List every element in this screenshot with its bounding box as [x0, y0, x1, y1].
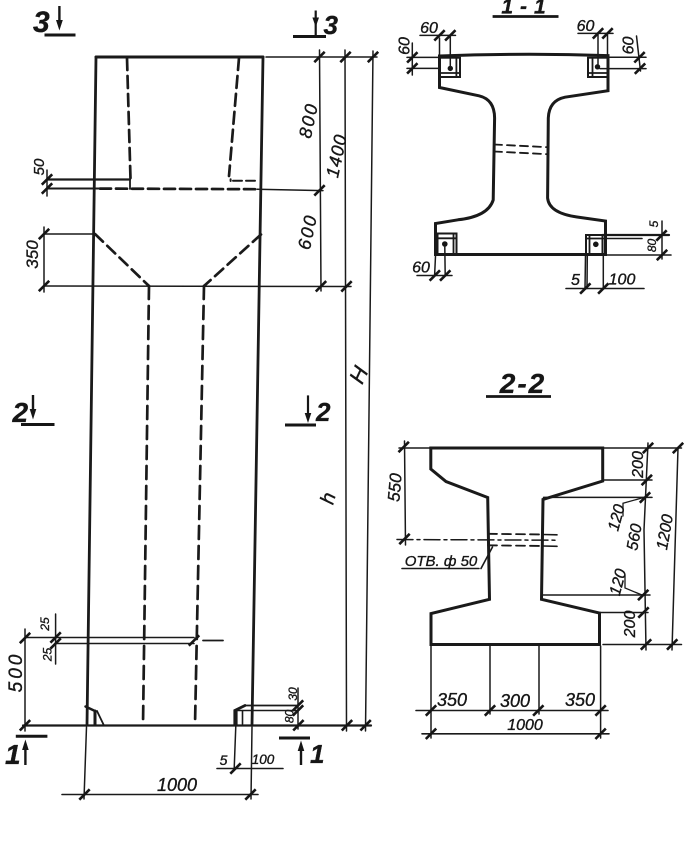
svg-text:60: 60: [621, 37, 638, 55]
svg-text:350: 350: [565, 690, 595, 710]
svg-text:80: 80: [283, 710, 297, 724]
svg-text:h: h: [317, 490, 341, 506]
svg-text:350: 350: [437, 690, 467, 710]
svg-text:30: 30: [286, 687, 300, 701]
svg-text:2-2: 2-2: [499, 368, 546, 399]
svg-text:5: 5: [571, 272, 580, 289]
svg-text:1: 1: [5, 739, 21, 770]
svg-text:200: 200: [630, 451, 647, 479]
svg-text:550: 550: [384, 472, 405, 502]
svg-text:60: 60: [577, 18, 595, 35]
svg-text:350: 350: [23, 240, 42, 269]
svg-text:200: 200: [622, 611, 639, 639]
svg-text:120: 120: [607, 567, 630, 597]
svg-text:25: 25: [41, 648, 55, 663]
svg-text:1000: 1000: [157, 775, 197, 795]
svg-text:600: 600: [294, 212, 321, 251]
svg-text:60: 60: [420, 20, 438, 37]
svg-text:25: 25: [38, 617, 52, 632]
svg-text:800: 800: [295, 101, 322, 140]
svg-text:ОТВ. ф 50: ОТВ. ф 50: [405, 553, 478, 570]
svg-text:5: 5: [220, 752, 228, 768]
svg-text:300: 300: [500, 691, 530, 711]
svg-text:80: 80: [645, 239, 659, 253]
svg-text:1400: 1400: [322, 132, 351, 179]
svg-text:1200: 1200: [654, 513, 677, 551]
svg-text:60: 60: [397, 37, 414, 55]
svg-text:1: 1: [310, 739, 324, 769]
svg-text:100: 100: [252, 752, 275, 767]
svg-text:5: 5: [647, 220, 661, 227]
svg-text:1000: 1000: [507, 717, 543, 734]
svg-text:60: 60: [412, 260, 430, 277]
svg-text:2: 2: [315, 397, 331, 427]
svg-text:50: 50: [31, 158, 48, 175]
svg-text:500: 500: [6, 652, 27, 693]
svg-text:3: 3: [324, 10, 339, 40]
svg-text:560: 560: [624, 523, 645, 552]
svg-text:100: 100: [609, 272, 636, 289]
svg-text:120: 120: [605, 503, 628, 533]
